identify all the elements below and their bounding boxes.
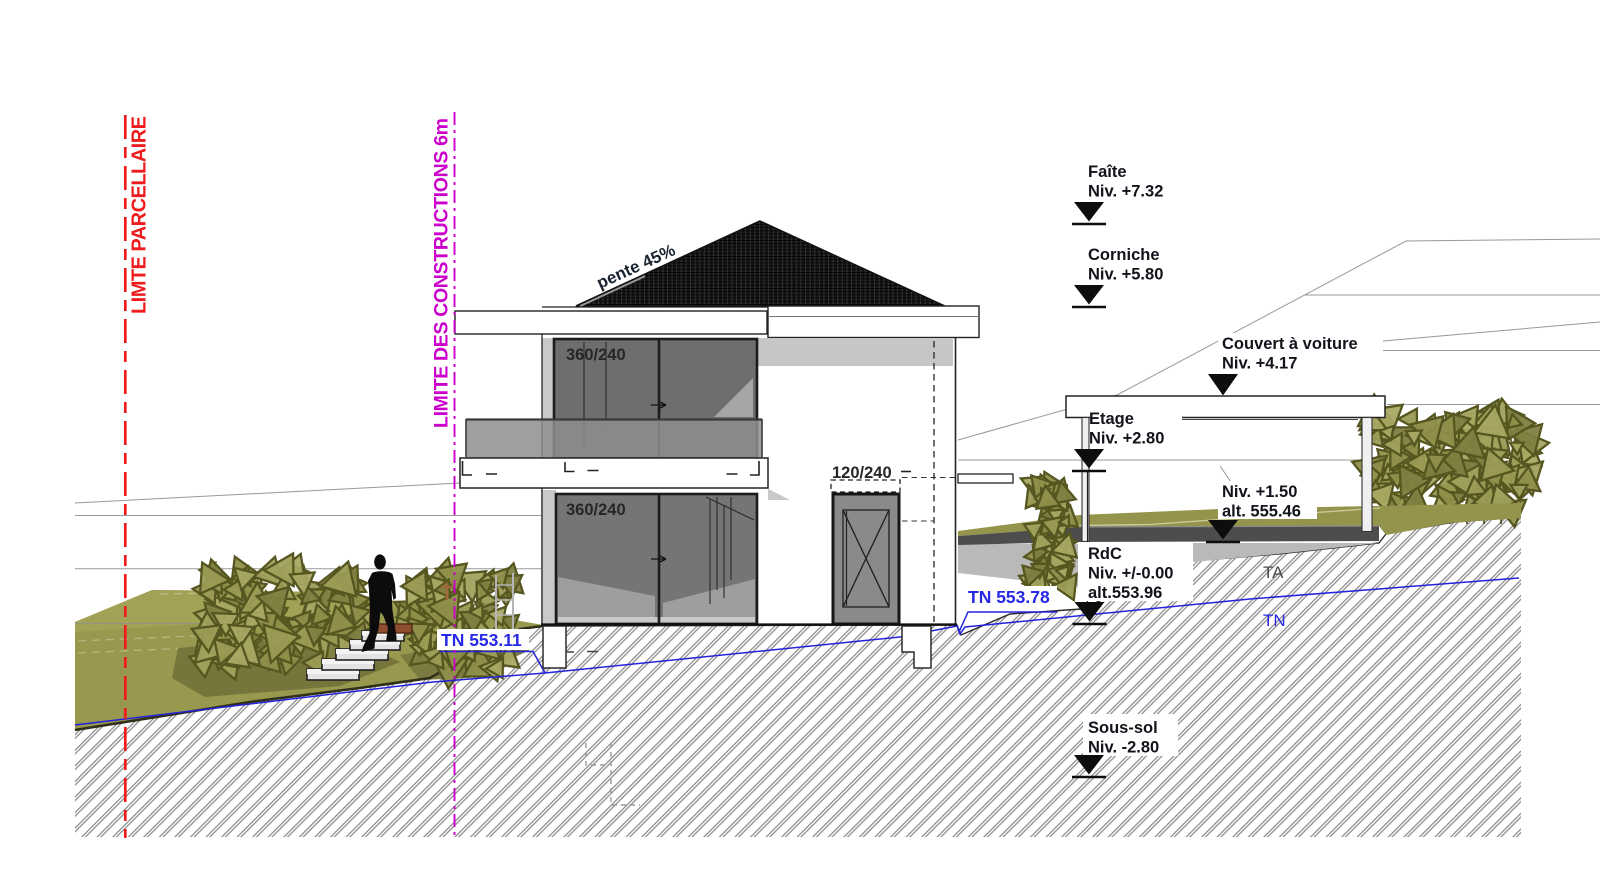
svg-text:Faîte: Faîte — [1088, 163, 1127, 181]
svg-text:LIMITE DES CONSTRUCTIONS 6m: LIMITE DES CONSTRUCTIONS 6m — [431, 118, 453, 428]
svg-text:TA: TA — [1263, 563, 1284, 582]
svg-text:alt. 555.46: alt. 555.46 — [1222, 503, 1301, 521]
svg-text:Niv. +2.80: Niv. +2.80 — [1089, 430, 1164, 448]
svg-text:Sous-sol: Sous-sol — [1088, 719, 1158, 737]
svg-text:Etage: Etage — [1089, 410, 1134, 428]
svg-text:360/240: 360/240 — [566, 346, 626, 364]
svg-text:alt.553.96: alt.553.96 — [1088, 584, 1162, 602]
svg-text:Niv. +5.80: Niv. +5.80 — [1088, 266, 1163, 284]
svg-text:TN: TN — [1263, 611, 1286, 630]
svg-text:LIMTE PARCELLAIRE: LIMTE PARCELLAIRE — [129, 116, 151, 314]
svg-text:Niv. +7.32: Niv. +7.32 — [1088, 183, 1163, 201]
svg-text:Couvert à voiture: Couvert à voiture — [1222, 335, 1358, 353]
svg-text:Niv. -2.80: Niv. -2.80 — [1088, 739, 1159, 757]
svg-text:120/240: 120/240 — [832, 464, 892, 482]
svg-text:360/240: 360/240 — [566, 501, 626, 519]
svg-text:Niv. +1.50: Niv. +1.50 — [1222, 483, 1297, 501]
svg-text:RdC: RdC — [1088, 545, 1122, 563]
svg-text:Corniche: Corniche — [1088, 246, 1160, 264]
svg-text:Niv. +/-0.00: Niv. +/-0.00 — [1088, 565, 1173, 583]
svg-text:Niv. +4.17: Niv. +4.17 — [1222, 355, 1297, 373]
svg-text:TN 553.78: TN 553.78 — [968, 587, 1050, 607]
svg-text:TN 553.11: TN 553.11 — [441, 630, 522, 650]
